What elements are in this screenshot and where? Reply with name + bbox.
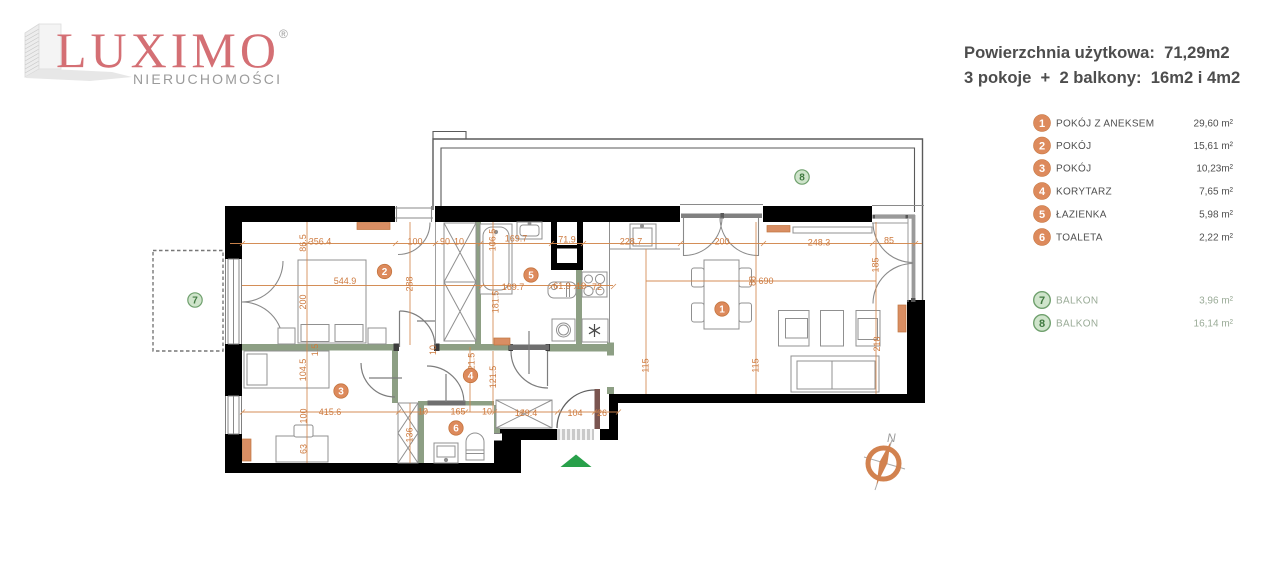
svg-text:ŁAZIENKA: ŁAZIENKA: [1056, 210, 1107, 221]
svg-text:POKÓJ: POKÓJ: [1056, 162, 1091, 175]
svg-text:5: 5: [528, 271, 534, 282]
svg-text:288: 288: [405, 276, 415, 291]
svg-text:10,23m²: 10,23m²: [1196, 164, 1233, 175]
svg-text:BALKON: BALKON: [1056, 296, 1098, 307]
svg-text:16,14 m²: 16,14 m²: [1194, 319, 1234, 330]
svg-text:136: 136: [405, 427, 415, 442]
svg-text:218: 218: [872, 336, 882, 351]
svg-text:10: 10: [482, 407, 492, 417]
svg-text:15,61 m²: 15,61 m²: [1194, 141, 1234, 152]
svg-text:BALKON: BALKON: [1056, 319, 1098, 330]
svg-text:4: 4: [468, 371, 474, 382]
svg-text:2: 2: [1039, 140, 1045, 152]
svg-text:63: 63: [299, 444, 309, 454]
svg-text:90: 90: [440, 237, 450, 247]
svg-text:3: 3: [1039, 163, 1045, 175]
svg-text:169.7: 169.7: [502, 282, 525, 292]
svg-text:10: 10: [454, 237, 464, 247]
svg-text:415.6: 415.6: [319, 407, 342, 417]
svg-text:4: 4: [1039, 186, 1046, 198]
svg-text:690: 690: [758, 276, 773, 286]
svg-text:®: ®: [279, 27, 288, 41]
svg-text:200: 200: [298, 294, 308, 309]
svg-text:104.5: 104.5: [298, 359, 308, 382]
svg-text:200: 200: [714, 237, 729, 247]
svg-text:10: 10: [576, 281, 586, 291]
svg-text:NIERUCHOMOŚCI: NIERUCHOMOŚCI: [133, 70, 282, 87]
svg-text:88: 88: [748, 276, 758, 286]
svg-text:LUXIMO: LUXIMO: [56, 22, 280, 78]
svg-text:5,98 m²: 5,98 m²: [1199, 210, 1234, 221]
svg-text:5: 5: [1039, 209, 1045, 221]
svg-text:121.5: 121.5: [488, 366, 498, 389]
svg-text:3,96 m²: 3,96 m²: [1199, 296, 1234, 307]
svg-text:3: 3: [338, 387, 344, 398]
svg-text:356.4: 356.4: [309, 237, 332, 247]
svg-text:26: 26: [597, 408, 607, 418]
svg-text:544.9: 544.9: [334, 276, 357, 286]
svg-text:72: 72: [592, 282, 602, 292]
svg-text:POKÓJ Z ANEKSEM: POKÓJ Z ANEKSEM: [1056, 117, 1154, 130]
svg-text:61.9: 61.9: [553, 281, 571, 291]
svg-text:104: 104: [567, 408, 582, 418]
svg-text:85: 85: [884, 236, 894, 246]
svg-text:6: 6: [453, 424, 459, 435]
svg-text:1: 1: [719, 305, 725, 316]
svg-text:8: 8: [1039, 318, 1045, 330]
svg-text:2: 2: [382, 267, 388, 278]
svg-text:1: 1: [1039, 118, 1045, 130]
svg-text:86.5: 86.5: [298, 234, 308, 252]
svg-text:3 pokoje + 2 balkony: 16m2: 3 pokoje + 2 balkony: 16m2 i 4m2: [964, 68, 1240, 87]
svg-text:7,65 m²: 7,65 m²: [1199, 187, 1234, 198]
svg-text:7: 7: [1039, 295, 1045, 307]
svg-text:POKÓJ: POKÓJ: [1056, 139, 1091, 152]
svg-text:100: 100: [299, 408, 309, 423]
svg-text:100: 100: [407, 237, 422, 247]
svg-text:TOALETA: TOALETA: [1056, 233, 1103, 244]
svg-text:10: 10: [428, 345, 438, 355]
svg-text:248.3: 248.3: [808, 238, 831, 248]
svg-text:129.4: 129.4: [515, 408, 538, 418]
svg-text:185: 185: [871, 257, 881, 272]
svg-text:7: 7: [192, 296, 198, 307]
svg-text:29,60 m²: 29,60 m²: [1194, 119, 1234, 130]
svg-text:228.7: 228.7: [620, 237, 643, 247]
svg-text:165: 165: [450, 407, 465, 417]
svg-text:115: 115: [641, 358, 651, 372]
svg-text:KORYTARZ: KORYTARZ: [1056, 187, 1112, 198]
svg-text:106.5: 106.5: [488, 229, 498, 252]
svg-text:1.5: 1.5: [310, 344, 320, 357]
svg-text:8: 8: [799, 173, 805, 184]
svg-text:115: 115: [751, 358, 761, 372]
svg-text:Powierzchnia użytkowa: 71,29m: Powierzchnia użytkowa: 71,29m2: [964, 43, 1230, 62]
svg-text:6: 6: [1039, 232, 1045, 244]
svg-text:169.7: 169.7: [505, 234, 528, 244]
svg-text:71.9: 71.9: [558, 235, 576, 245]
svg-text:181.5: 181.5: [491, 291, 501, 314]
svg-text:10: 10: [418, 407, 428, 417]
svg-text:2,22 m²: 2,22 m²: [1199, 233, 1234, 244]
